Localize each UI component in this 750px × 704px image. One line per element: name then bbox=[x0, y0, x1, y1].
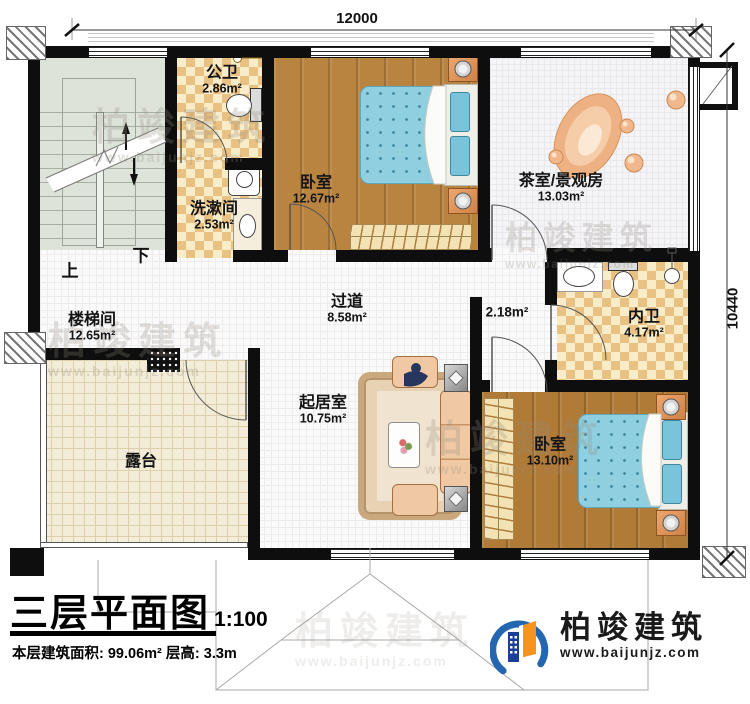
wall-washroom-stub bbox=[233, 250, 262, 262]
column-hatch-bottom-right bbox=[702, 546, 746, 578]
shower-icon bbox=[664, 268, 680, 284]
masonry-column bbox=[147, 348, 180, 372]
nightstand bbox=[656, 510, 686, 536]
bed-mattress bbox=[578, 414, 660, 508]
window-tea-room-right bbox=[688, 66, 700, 252]
room-label-hallway: 过道 8.58m² bbox=[327, 293, 367, 324]
room-label-alcove: 2.18m² bbox=[486, 306, 529, 321]
title-underline bbox=[10, 631, 216, 636]
room-label-bedroom-top: 卧室 12.67m² bbox=[293, 174, 340, 205]
wall-passage-west bbox=[470, 297, 482, 548]
brand-name: 柏竣建筑 bbox=[560, 612, 708, 645]
coffee-table bbox=[388, 422, 420, 468]
window-tea-room bbox=[520, 46, 652, 58]
room-label-public-bathroom: 公卫 2.86m² bbox=[202, 64, 242, 95]
side-table bbox=[444, 486, 468, 512]
plan-title: 三层平面图 bbox=[10, 593, 210, 635]
flower-decor bbox=[394, 435, 416, 457]
pillow bbox=[662, 464, 682, 504]
wall-terrace-right bbox=[248, 348, 260, 548]
armchair bbox=[392, 356, 438, 388]
wall-bedroom-top-bottom bbox=[336, 250, 490, 262]
wardrobe bbox=[350, 224, 472, 250]
column-bottom-left bbox=[10, 548, 44, 576]
toilet-icon bbox=[613, 271, 634, 297]
wall-left bbox=[28, 58, 40, 360]
sink-icon bbox=[563, 266, 595, 287]
eave-line bbox=[88, 37, 654, 38]
washing-machine-drum bbox=[236, 171, 253, 188]
room-label-bedroom-right: 卧室 13.10m² bbox=[527, 436, 574, 467]
wall-tea-bottom bbox=[478, 248, 492, 262]
wall-top bbox=[430, 46, 520, 58]
tea-room-floor bbox=[490, 58, 688, 248]
brand-logo: 柏竣建筑 www.baijunjz.com bbox=[490, 612, 708, 678]
window-bedroom-right bbox=[520, 548, 650, 560]
pillow bbox=[450, 136, 470, 176]
lamp-icon bbox=[455, 193, 472, 210]
terrace-railing-left bbox=[40, 360, 47, 548]
wall-bedroom-right-top bbox=[482, 380, 490, 392]
nightstand bbox=[656, 394, 686, 420]
bed-mattress bbox=[360, 86, 446, 184]
title-block: 三层平面图1:100 bbox=[10, 582, 268, 637]
tv-cabinet bbox=[444, 364, 468, 392]
wall-stair-divider bbox=[165, 58, 177, 262]
floor-plan: 柏竣建筑 www.baijunjz.com 柏竣建筑 www.baijunjz.… bbox=[0, 0, 750, 704]
eave-line bbox=[88, 33, 654, 34]
dimension-top: 12000 bbox=[336, 10, 378, 27]
wall-bath-separator bbox=[225, 158, 262, 170]
wall-right bbox=[688, 252, 700, 560]
wall-tea-bottom bbox=[547, 248, 688, 262]
wall-ensuite-left bbox=[545, 262, 557, 305]
room-label-washroom: 洗漱间 2.53m² bbox=[190, 200, 238, 231]
lamp-icon bbox=[455, 61, 472, 78]
stair-up-label: 上 bbox=[62, 257, 79, 282]
window-stairwell bbox=[88, 46, 168, 58]
wall-bedroom-top-bottom bbox=[262, 250, 288, 262]
lamp-icon bbox=[663, 515, 680, 532]
wall-bottom bbox=[455, 548, 520, 560]
room-label-terrace: 露台 bbox=[125, 453, 157, 471]
nightstand bbox=[448, 56, 478, 82]
room-label-ensuite: 内卫 4.17m² bbox=[624, 308, 664, 339]
dimension-right: 10440 bbox=[724, 288, 741, 330]
plan-stats: 本层建筑面积: 99.06m² 层高: 3.3m bbox=[12, 642, 237, 663]
room-label-tea-room: 茶室/景观房 13.03m² bbox=[519, 172, 603, 203]
wall-bath-divider bbox=[262, 46, 274, 262]
stair-center-rail bbox=[96, 112, 104, 248]
nightstand bbox=[448, 188, 478, 214]
column-hatch-top-left bbox=[6, 26, 46, 60]
armchair bbox=[392, 484, 438, 516]
sofa bbox=[440, 390, 472, 494]
room-label-stairwell: 楼梯间 12.65m² bbox=[68, 311, 116, 342]
watermark: 柏竣建筑 www.baijunjz.com bbox=[295, 612, 475, 669]
toilet-tank bbox=[608, 262, 638, 271]
plan-scale: 1:100 bbox=[214, 608, 268, 631]
wall-bottom bbox=[650, 548, 700, 560]
lamp-icon bbox=[663, 399, 680, 416]
column-hatch-left bbox=[4, 332, 46, 364]
window-living-room bbox=[330, 548, 455, 560]
wall-bedroom-right-top bbox=[545, 380, 688, 392]
room-label-living-room: 起居室 10.75m² bbox=[299, 394, 347, 425]
pillow bbox=[450, 92, 470, 132]
wall-top bbox=[168, 46, 310, 58]
wardrobe bbox=[484, 398, 514, 540]
terrace-railing-bottom bbox=[40, 542, 248, 548]
stair-down-label: 下 bbox=[133, 242, 150, 267]
toilet-icon bbox=[226, 94, 252, 117]
wall-bedroom-tea-divider bbox=[478, 58, 490, 262]
eave-line bbox=[88, 41, 654, 42]
pillow bbox=[662, 420, 682, 460]
sink-icon bbox=[239, 214, 256, 238]
brand-mark-icon bbox=[490, 612, 552, 678]
window-bedroom-top bbox=[310, 46, 430, 58]
flue-box bbox=[700, 62, 738, 110]
brand-text: 柏竣建筑 www.baijunjz.com bbox=[560, 612, 708, 660]
wall-bottom bbox=[248, 548, 330, 560]
brand-website: www.baijunjz.com bbox=[560, 645, 708, 660]
column-hatch-top-right bbox=[670, 26, 712, 58]
